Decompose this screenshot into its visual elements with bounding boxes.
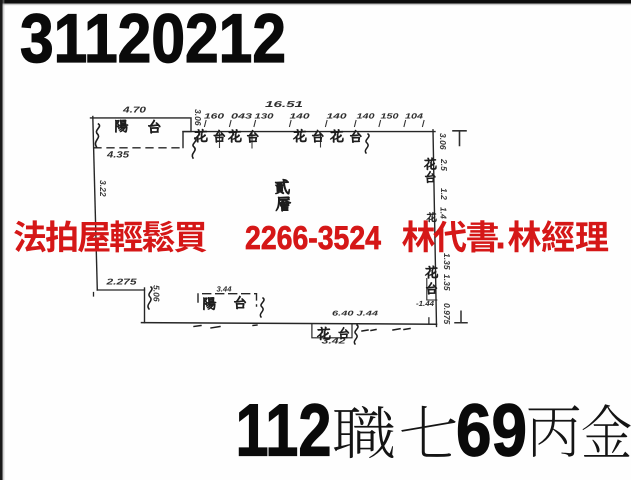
- svg-text:2266-3524: 2266-3524: [245, 219, 382, 256]
- svg-text:160: 160: [204, 112, 225, 121]
- svg-text:3.06: 3.06: [438, 133, 448, 150]
- svg-text:.: .: [495, 214, 506, 258]
- svg-text:-1.44: -1.44: [416, 299, 435, 308]
- svg-text:4.35: 4.35: [106, 150, 130, 160]
- svg-text:3.22: 3.22: [98, 180, 108, 197]
- svg-text:1.35: 1.35: [442, 253, 452, 270]
- svg-text:140: 140: [357, 112, 376, 121]
- svg-text:69: 69: [456, 389, 527, 472]
- svg-text:2.5: 2.5: [439, 158, 449, 171]
- svg-text:130: 130: [255, 112, 275, 121]
- svg-text:1.35: 1.35: [442, 274, 452, 291]
- svg-text:112: 112: [236, 389, 332, 472]
- svg-text:16.51: 16.51: [265, 99, 303, 109]
- svg-text:3.44: 3.44: [217, 285, 233, 294]
- svg-text:3.06: 3.06: [193, 109, 203, 126]
- svg-text:6.40 J.44: 6.40 J.44: [332, 311, 378, 318]
- svg-text:5.06: 5.06: [152, 285, 162, 302]
- svg-text:2.275: 2.275: [105, 277, 137, 287]
- svg-text:150: 150: [381, 112, 400, 121]
- svg-text:1.2: 1.2: [439, 188, 449, 200]
- svg-text:043: 043: [231, 112, 253, 121]
- svg-text:140: 140: [327, 112, 348, 121]
- svg-text:104: 104: [405, 112, 424, 121]
- svg-text:1.4: 1.4: [439, 207, 449, 219]
- svg-text:4.70: 4.70: [122, 105, 147, 115]
- svg-text:140: 140: [290, 112, 311, 121]
- svg-text:0.975: 0.975: [442, 303, 452, 325]
- svg-text:31120212: 31120212: [20, 0, 286, 77]
